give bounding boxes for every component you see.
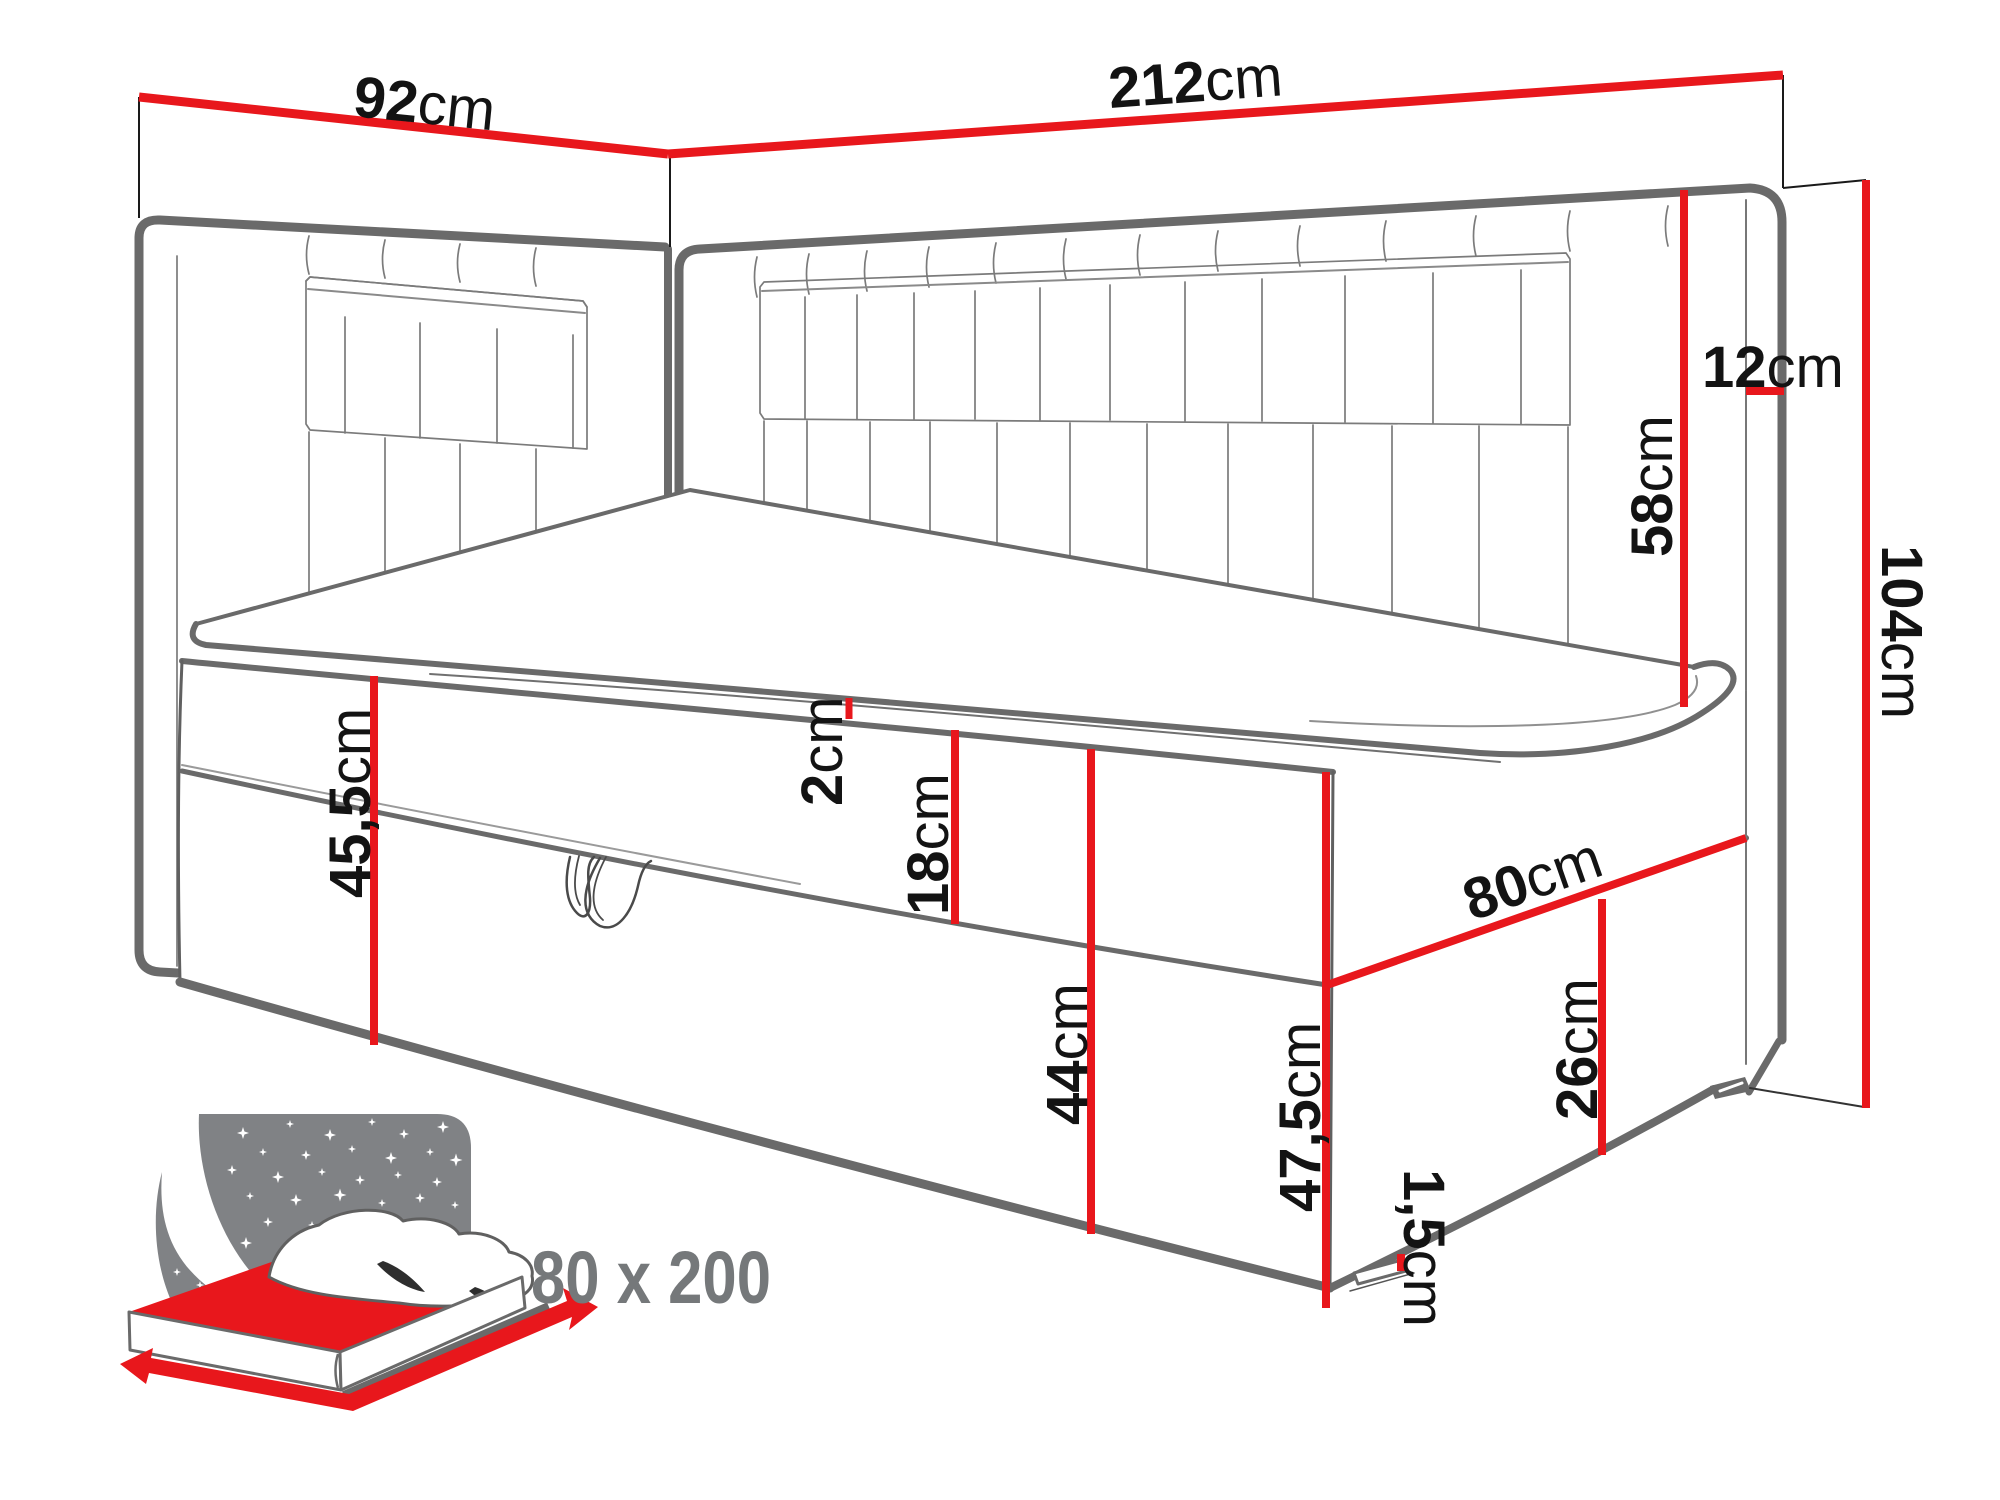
svg-text:45,5cm: 45,5cm <box>318 708 383 898</box>
svg-text:18cm: 18cm <box>896 773 961 915</box>
svg-text:1,5cm: 1,5cm <box>1391 1169 1456 1327</box>
svg-text:44cm: 44cm <box>1035 983 1100 1125</box>
svg-text:80 x 200: 80 x 200 <box>531 1236 771 1319</box>
svg-text:58cm: 58cm <box>1620 415 1685 557</box>
svg-text:47,5cm: 47,5cm <box>1268 1022 1333 1212</box>
svg-text:104cm: 104cm <box>1869 545 1934 719</box>
svg-text:212cm: 212cm <box>1106 43 1284 121</box>
svg-text:26cm: 26cm <box>1545 978 1610 1120</box>
svg-text:12cm: 12cm <box>1702 335 1844 400</box>
svg-text:2cm: 2cm <box>790 696 855 806</box>
